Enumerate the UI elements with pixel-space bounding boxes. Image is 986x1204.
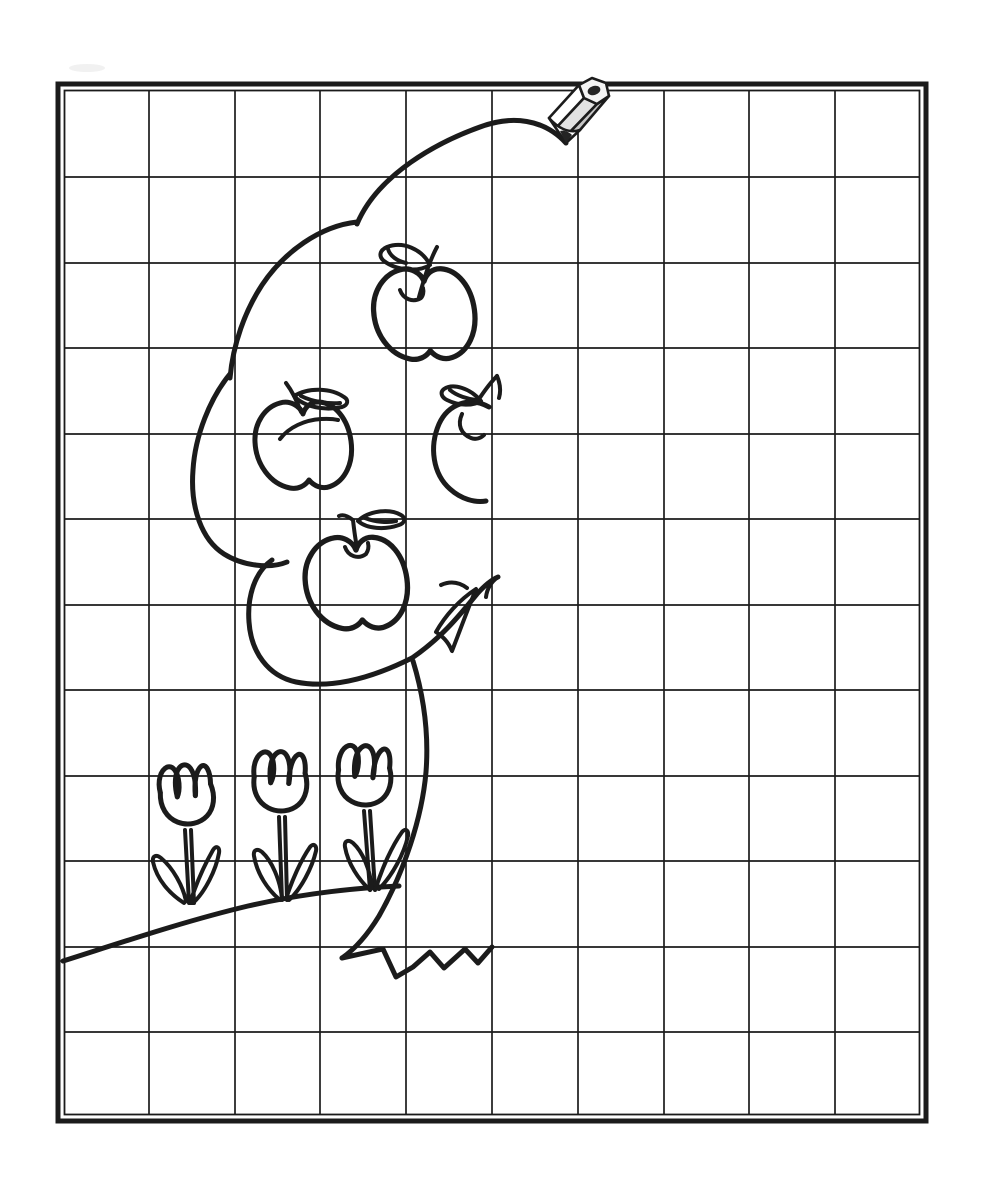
tree-drawing (63, 120, 566, 977)
tulip-3 (337, 744, 408, 890)
trunk-left-edge (342, 661, 427, 958)
trunk-zigzag-base (342, 947, 492, 977)
tulip-2-leaf-left (254, 850, 282, 900)
worksheet-canvas (0, 0, 986, 1204)
tulip-1-head (155, 760, 217, 828)
pencil-icon (549, 78, 609, 143)
worksheet-page (0, 0, 986, 1204)
apple-left-body (255, 402, 352, 488)
tulip-3-head (337, 744, 392, 806)
tulip-2 (252, 749, 316, 900)
apple-top-leaf-vein (388, 249, 406, 263)
grid (65, 90, 920, 1115)
tulip-1 (153, 760, 219, 903)
tree-canopy-left-half (193, 120, 566, 684)
apple-half-on-axis (434, 376, 500, 502)
tulip-2-head (252, 749, 309, 813)
canopy-upper-left-scallop (230, 222, 357, 378)
canopy-end-leaf-accent (441, 583, 467, 588)
apple-half-stem-barb (497, 376, 500, 398)
tulip-1-leaf-left (153, 856, 186, 903)
apple-half-stem (479, 376, 497, 399)
apple-left (255, 383, 352, 488)
apple-half-accent (460, 414, 484, 439)
apple-left-accent (280, 419, 338, 439)
canopy-top-arc (357, 120, 566, 224)
canopy-left-scallop (193, 374, 287, 566)
scan-smudge (69, 64, 105, 72)
